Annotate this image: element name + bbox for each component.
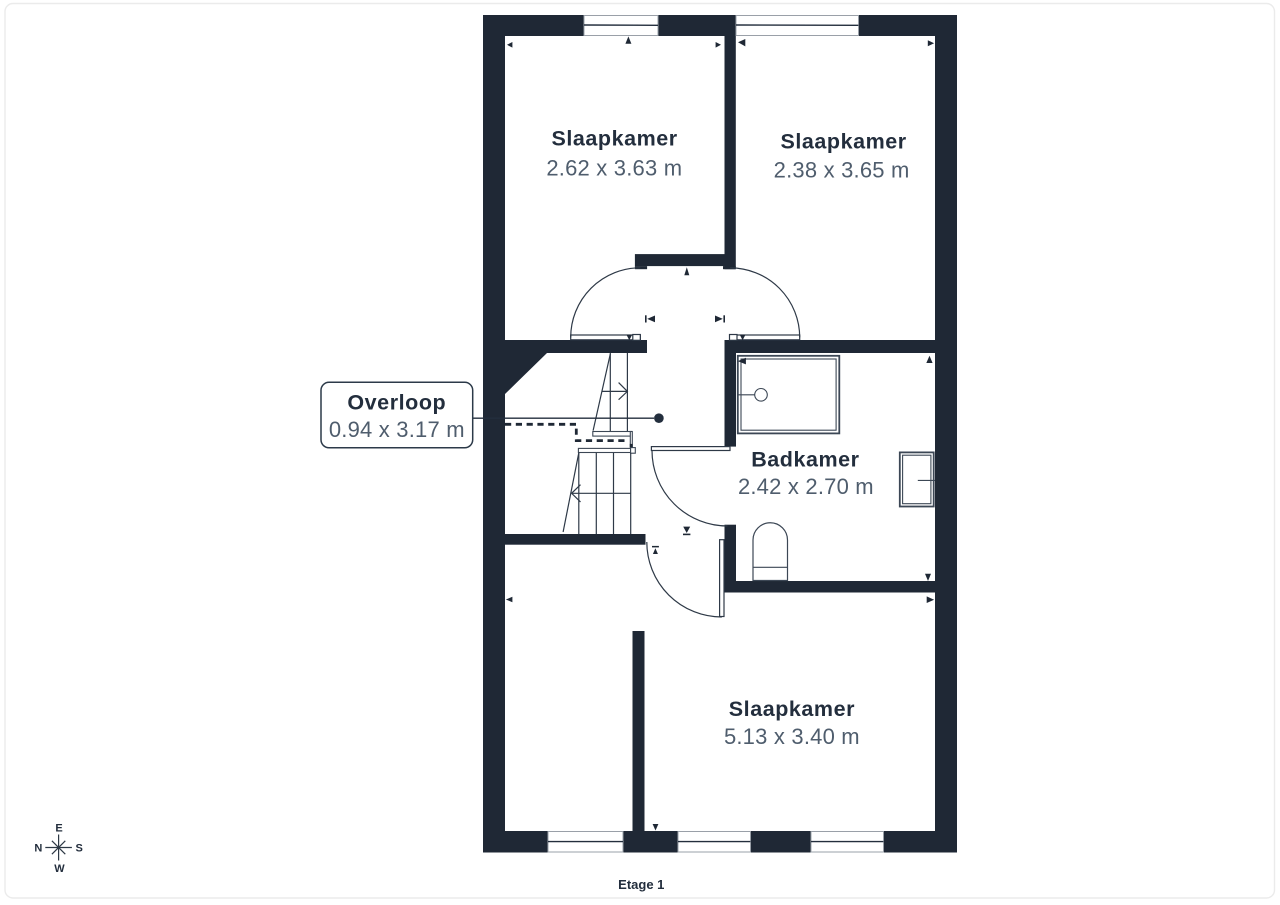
svg-text:E: E bbox=[55, 823, 62, 835]
svg-text:0.94 x 3.17 m: 0.94 x 3.17 m bbox=[329, 417, 465, 442]
svg-text:W: W bbox=[54, 863, 65, 875]
svg-text:Etage 1: Etage 1 bbox=[618, 877, 664, 892]
svg-text:2.62 x 3.63 m: 2.62 x 3.63 m bbox=[546, 156, 682, 181]
svg-text:Slaapkamer: Slaapkamer bbox=[780, 129, 906, 153]
svg-text:S: S bbox=[76, 843, 83, 855]
svg-text:Slaapkamer: Slaapkamer bbox=[551, 126, 677, 150]
svg-text:Overloop: Overloop bbox=[347, 391, 446, 415]
svg-text:Slaapkamer: Slaapkamer bbox=[729, 697, 855, 721]
svg-text:N: N bbox=[34, 843, 42, 855]
svg-text:2.42 x 2.70 m: 2.42 x 2.70 m bbox=[738, 474, 874, 499]
svg-text:2.38 x 3.65 m: 2.38 x 3.65 m bbox=[774, 158, 910, 183]
svg-text:Badkamer: Badkamer bbox=[751, 447, 859, 471]
svg-text:5.13 x 3.40 m: 5.13 x 3.40 m bbox=[724, 724, 860, 749]
